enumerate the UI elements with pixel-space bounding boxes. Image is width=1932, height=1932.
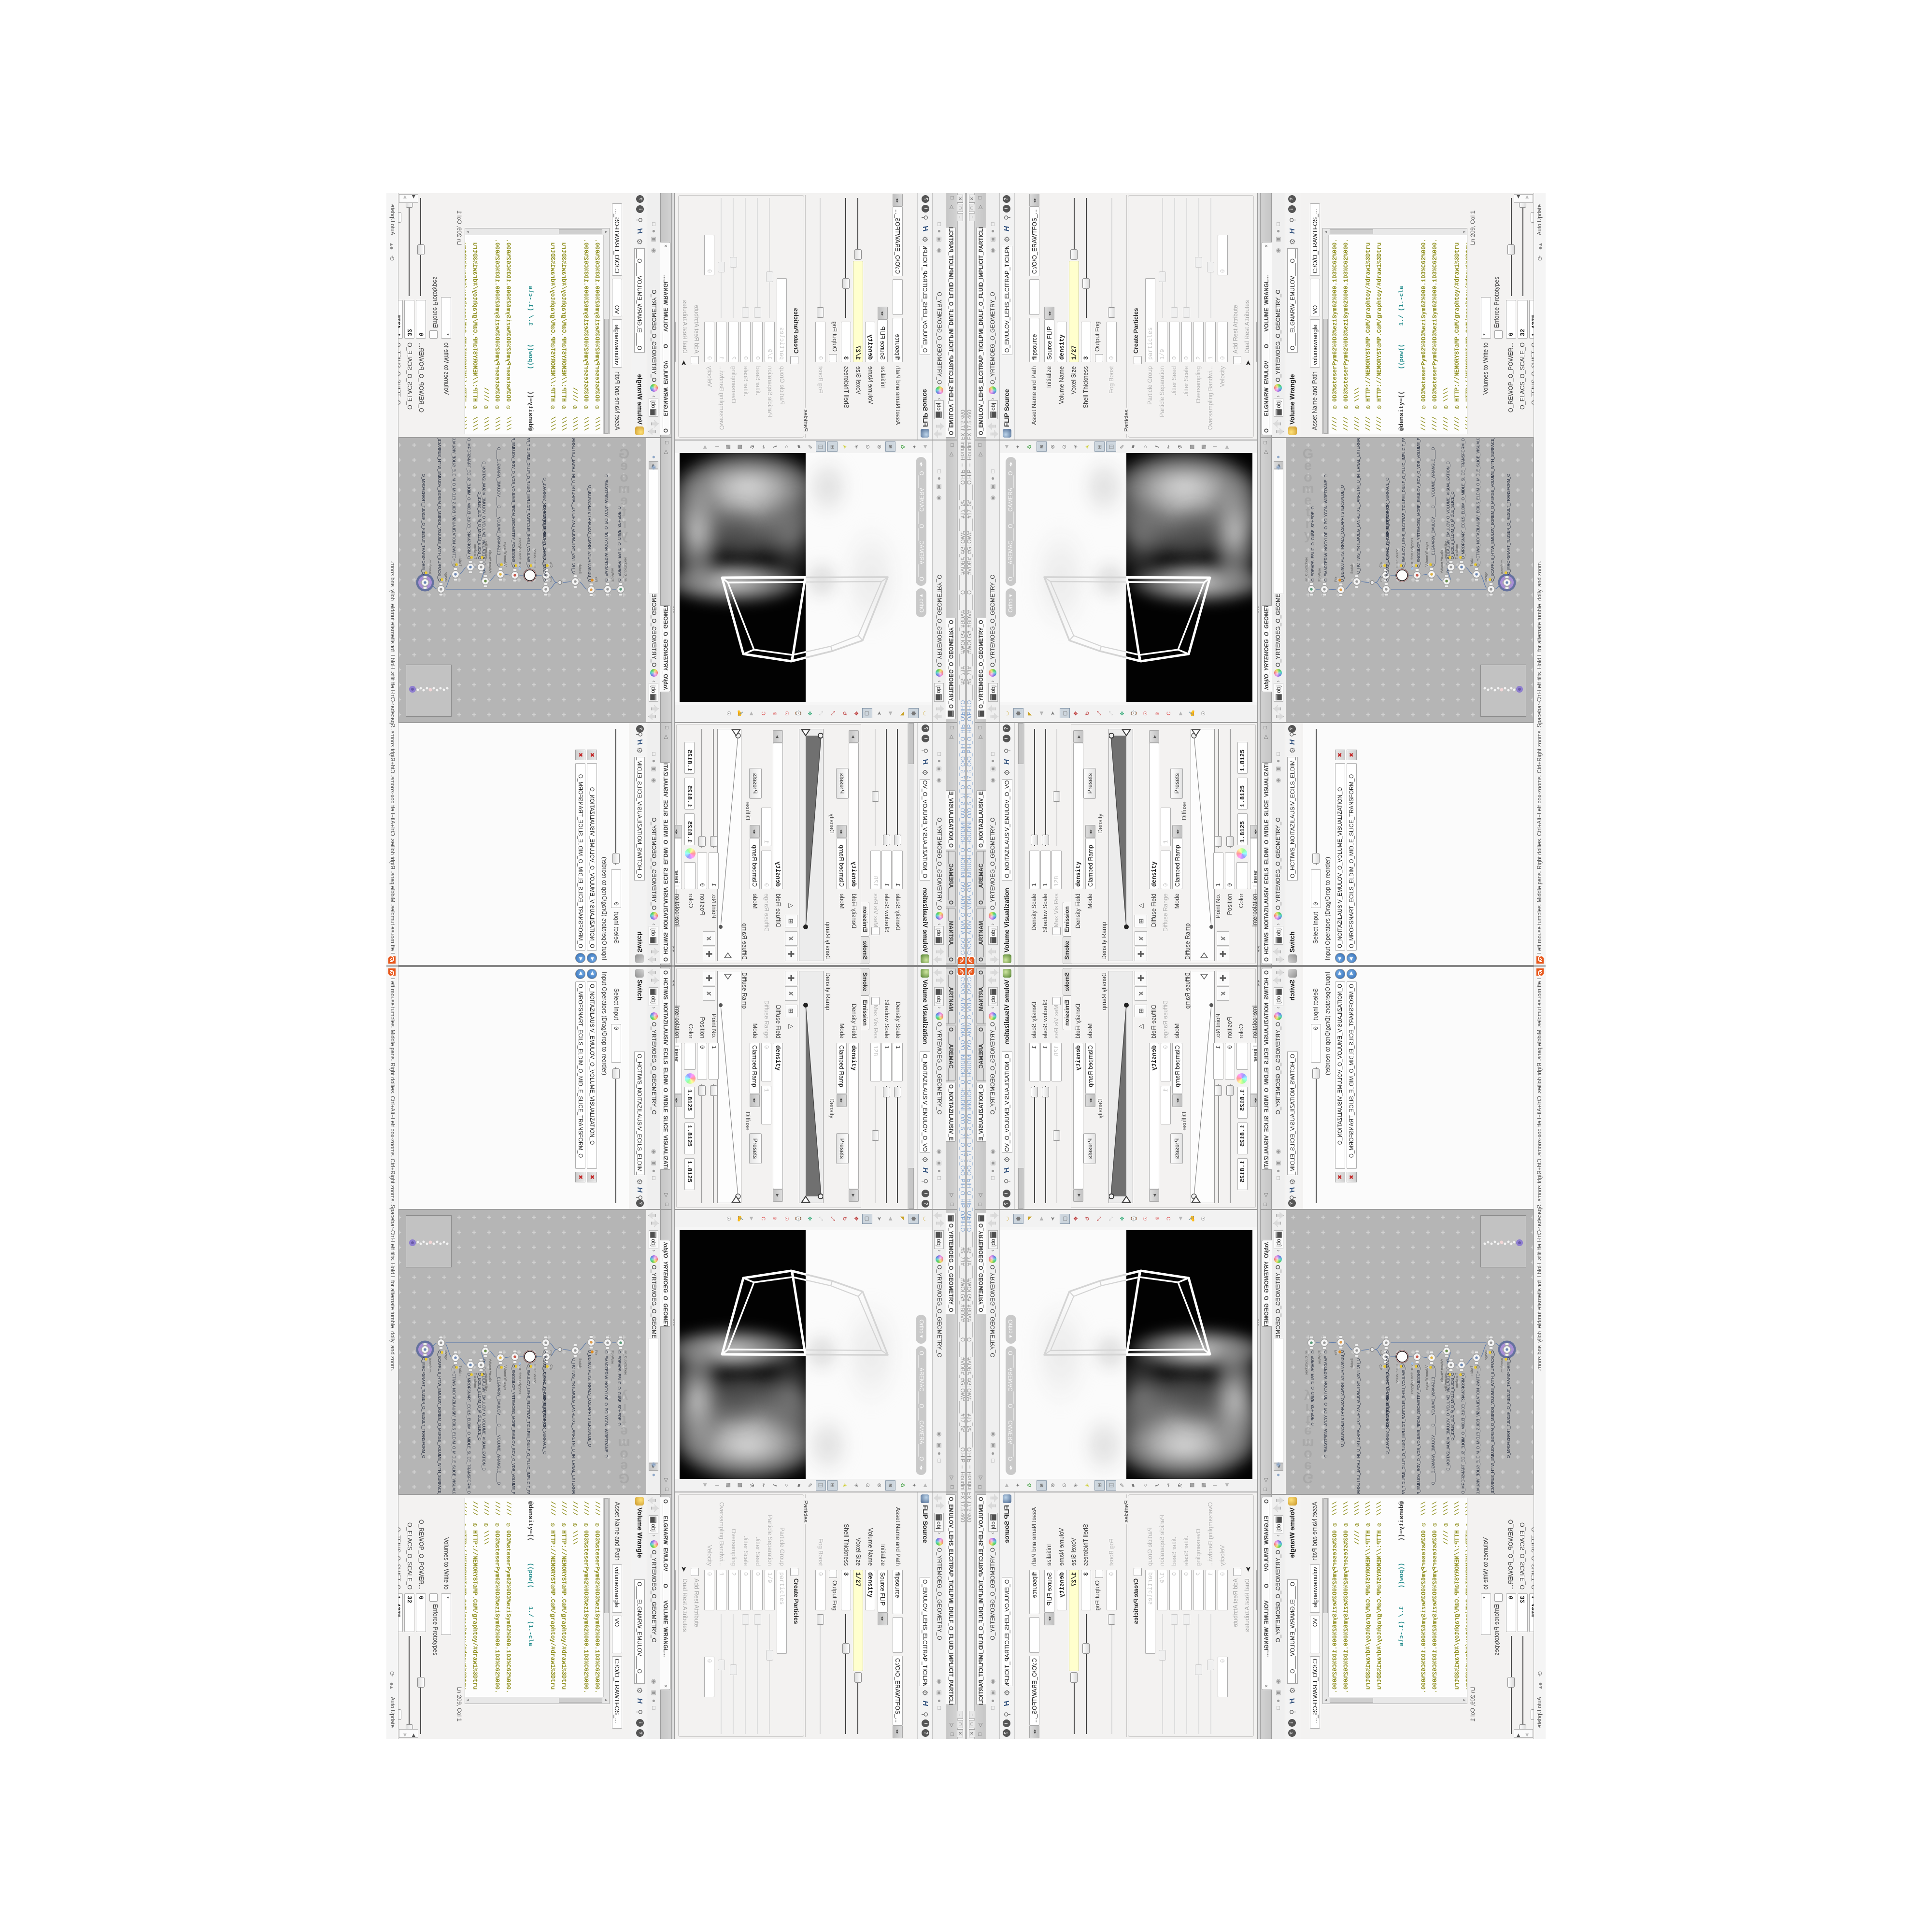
svg-text:Transform: Transform [1501,1357,1504,1373]
svg-text:Switch: Switch [1350,564,1354,574]
svg-text:O_EMARFERIW_NOGYLOP_O_POLYGON_: O_EMARFERIW_NOGYLOP_O_POLYGON_WIREFRAME_… [604,474,608,582]
svg-text:Merge: Merge [1485,572,1488,582]
svg-text:Clip: Clip [1380,1350,1383,1356]
svg-text:FLIP Source: FLIP Source [533,549,536,568]
svg-text:O_ECAFRUS_HTIW_EMULOV_EGREM_O_: O_ECAFRUS_HTIW_EMULOV_EGREM_O_MERGE_VOLU… [437,1350,441,1494]
svg-text:VolumeSlice: VolumeSlice [1445,1373,1448,1392]
svg-text:Clip: Clip [549,1350,552,1356]
svg-text:Volume Wrangle: Volume Wrangle [1425,1365,1429,1390]
svg-text:PolyWire: PolyWire [611,1350,614,1364]
svg-text:O_MROFSNART_TLUSER_O_RESULT_TR: O_MROFSNART_TLUSER_O_RESULT_TRANSFORM_O [1506,474,1511,575]
svg-text:O_MROFSNART_ECILS_ELDIM_O_MIDL: O_MROFSNART_ECILS_ELDIM_O_MIDLE_SLICE_TR… [467,438,471,559]
svg-text:O_EMARFERIW_NOGYLOP_O_POLYGON_: O_EMARFERIW_NOGYLOP_O_POLYGON_WIREFRAME_… [1324,1350,1328,1458]
svg-text:O_ECAFRUS_PILC_O_CLIP_SURFACE_: O_ECAFRUS_PILC_O_CLIP_SURFACE_O [1386,1350,1390,1426]
svg-text:O_MROFSNART_ECILS_ELDIM_O_MIDL: O_MROFSNART_ECILS_ELDIM_O_MIDLE_SLICE_TR… [1461,1373,1465,1494]
svg-text:O_EMULOV_LEHS_ELCITRAP_TICILPM: O_EMULOV_LEHS_ELCITRAP_TICILPMI_DIULF_O_… [1402,1364,1406,1494]
svg-text:O____ELGNARW_EMULOV____O____VO: O____ELGNARW_EMULOV____O____VOLUME_WRANG… [497,447,501,567]
svg-text:Merge: Merge [444,572,447,582]
svg-text:Switch: Switch [1350,1358,1354,1368]
svg-text:O_BD.N03.PETS.TRPALS_O.SLAPRT.: O_BD.N03.PETS.TRPALS_O.SLAPRT.STEP.30N.D… [1340,1350,1345,1447]
svg-text:O_SNOGILOP_YRTEMOEG_MORF_EMULO: O_SNOGILOP_YRTEMOEG_MORF_EMULOV_BDV_O_VD… [1417,1364,1421,1494]
svg-text:Volume Wrangle: Volume Wrangle [1425,542,1429,567]
svg-text:VDB from Polygons: VDB from Polygons [518,538,521,568]
svg-text:O_HCTIWS_YRTEMOEG_LANRETXE_LAN: O_HCTIWS_YRTEMOEG_LANRETXE_LANRETNI_O_IN… [1356,438,1361,574]
svg-text:O_ECAFRUS_PILC_O_CLIP_SURFACE_: O_ECAFRUS_PILC_O_CLIP_SURFACE_O [542,1350,546,1426]
svg-text:Transform: Transform [428,559,431,575]
svg-text:O_EMARFERIW_NOGYLOP_O_POLYGON_: O_EMARFERIW_NOGYLOP_O_POLYGON_WIREFRAME_… [604,1350,608,1458]
svg-text:Transform: Transform [1501,559,1504,575]
svg-text:O_MROFSNART_TLUSER_O_RESULT_TR: O_MROFSNART_TLUSER_O_RESULT_TRANSFORM_O [421,474,426,575]
svg-text:O_EMARFERIW_NOGYLOP_O_POLYGON_: O_EMARFERIW_NOGYLOP_O_POLYGON_WIREFRAME_… [1324,474,1328,582]
svg-text:an_CubeSphere: an_CubeSphere [624,557,627,582]
svg-text:O_HCTIWS_NOITAZILAUSIV_ECILS_E: O_HCTIWS_NOITAZILAUSIV_ECILS_ELDIM_O_MID… [452,438,456,567]
svg-text:O_ECAFRUS_PILC_O_CLIP_SURFACE_: O_ECAFRUS_PILC_O_CLIP_SURFACE_O [1386,506,1390,582]
svg-text:Clip: Clip [1379,562,1383,568]
svg-text:O_HCTIWS_YRTEMOEG_LANRETXE_LAN: O_HCTIWS_YRTEMOEG_LANRETXE_LANRETNI_O_IN… [571,1358,576,1494]
svg-text:O_HCTIWS_NOITAZILAUSIV_ECILS_E: O_HCTIWS_NOITAZILAUSIV_ECILS_ELDIM_O_MID… [1476,1365,1480,1494]
svg-text:Clip: Clip [549,576,552,582]
svg-text:an_CubeSphere: an_CubeSphere [1305,557,1308,582]
svg-text:PolyWire: PolyWire [1318,568,1321,582]
svg-text:Transform: Transform [1455,1373,1459,1388]
svg-text:O_SNOGILOP_YRTEMOEG_MORF_EMULO: O_SNOGILOP_YRTEMOEG_MORF_EMULOV_BDV_O_VD… [1417,438,1421,568]
svg-text:Clip: Clip [1380,576,1383,582]
svg-text:an_CubeSphere: an_CubeSphere [624,1350,627,1375]
svg-text:File: File [1335,577,1338,582]
svg-text:Volume Wrangle: Volume Wrangle [503,1365,507,1390]
svg-text:VDB from Polygons: VDB from Polygons [1411,1364,1414,1394]
svg-text:O_MROFSNART_ECILS_ELDIM_O_MIDL: O_MROFSNART_ECILS_ELDIM_O_MIDLE_SLICE_TR… [1461,438,1465,559]
svg-text:Switch: Switch [578,564,582,574]
svg-text:O_BD.N03.PETS.TRPALS_O.SLAPRT.: O_BD.N03.PETS.TRPALS_O.SLAPRT.STEP.30N.D… [587,1350,592,1447]
svg-text:Merge: Merge [1485,1350,1488,1360]
svg-text:Volume Visualiz: Volume Visualiz [488,549,492,573]
svg-text:Transform: Transform [428,1357,431,1373]
svg-text:Volume Visualiz: Volume Visualiz [1440,1359,1444,1383]
svg-text:FLIP Source: FLIP Source [1396,549,1399,568]
svg-text:VolumeSlice: VolumeSlice [484,540,487,559]
svg-text:O_HCTIWS_YRTEMOEG_LANRETXE_LAN: O_HCTIWS_YRTEMOEG_LANRETXE_LANRETNI_O_IN… [1356,1358,1361,1494]
svg-text:Volume Visualiz: Volume Visualiz [1440,549,1444,573]
svg-text:Switch: Switch [458,1365,462,1376]
svg-text:O_ECILS_ELDIM_O_MIDLE_SLICE_O: O_ECILS_ELDIM_O_MIDLE_SLICE_O [477,491,482,559]
svg-text:Clip: Clip [1379,1364,1383,1370]
svg-text:O_HCTIWS_YRTEMOEG_LANRETXE_LAN: O_HCTIWS_YRTEMOEG_LANRETXE_LANRETNI_O_IN… [571,438,576,574]
svg-text:O_BD.N03.PETS.TRPALS_O.SLAPRT.: O_BD.N03.PETS.TRPALS_O.SLAPRT.STEP.30N.D… [1340,485,1345,582]
svg-text:Clip: Clip [549,562,553,568]
svg-text:File: File [1335,1350,1338,1355]
svg-text:O____ELGNARW_EMULOV____O____VO: O____ELGNARW_EMULOV____O____VOLUME_WRANG… [1431,1365,1435,1485]
svg-text:VolumeSlice: VolumeSlice [484,1373,487,1392]
svg-text:Transform: Transform [473,1373,477,1388]
svg-text:O_EMULOV_LEHS_ELCITRAP_TICILPM: O_EMULOV_LEHS_ELCITRAP_TICILPMI_DIULF_O_… [526,1364,530,1494]
svg-text:File: File [594,577,597,582]
svg-text:Switch: Switch [458,556,462,567]
svg-text:Switch: Switch [1470,1365,1474,1376]
svg-text:O_HCTIWS_NOITAZILAUSIV_ECILS_E: O_HCTIWS_NOITAZILAUSIV_ECILS_ELDIM_O_MID… [452,1365,456,1494]
svg-text:Switch: Switch [1470,556,1474,567]
svg-text:O_ECAFRUS_PILC_O_CLIP_SURFACE_: O_ECAFRUS_PILC_O_CLIP_SURFACE_O [542,506,546,582]
svg-text:O_ECILS_ELDIM_O_MIDLE_SLICE_O: O_ECILS_ELDIM_O_MIDLE_SLICE_O [1450,1373,1455,1441]
svg-text:Volume Visualiz: Volume Visualiz [488,1359,492,1383]
svg-text:O_HCTIWS_NOITAZILAUSIV_ECILS_E: O_HCTIWS_NOITAZILAUSIV_ECILS_ELDIM_O_MID… [1476,438,1480,567]
svg-text:PolyWire: PolyWire [611,568,614,582]
svg-text:O_MROFSNART_ECILS_ELDIM_O_MIDL: O_MROFSNART_ECILS_ELDIM_O_MIDLE_SLICE_TR… [467,1373,471,1494]
svg-text:O_ECAFRUS_HTIW_EMULOV_EGREM_O_: O_ECAFRUS_HTIW_EMULOV_EGREM_O_MERGE_VOLU… [1491,1350,1495,1494]
svg-text:O____ELGNARW_EMULOV____O____VO: O____ELGNARW_EMULOV____O____VOLUME_WRANG… [1431,447,1435,567]
svg-text:O_SNOGILOP_YRTEMOEG_MORF_EMULO: O_SNOGILOP_YRTEMOEG_MORF_EMULOV_BDV_O_VD… [511,1364,515,1494]
svg-text:an_CubeSphere: an_CubeSphere [1305,1350,1308,1375]
svg-text:PolyWire: PolyWire [1318,1350,1321,1364]
svg-text:FLIP Source: FLIP Source [1396,1364,1399,1383]
svg-text:O_EMULOV_LEHS_ELCITRAP_TICILPM: O_EMULOV_LEHS_ELCITRAP_TICILPMI_DIULF_O_… [1402,438,1406,568]
svg-text:O____ELGNARW_EMULOV____O____VO: O____ELGNARW_EMULOV____O____VOLUME_WRANG… [497,1365,501,1485]
svg-text:O_ECILS_ELDIM_O_MIDLE_SLICE_O: O_ECILS_ELDIM_O_MIDLE_SLICE_O [477,1373,482,1441]
svg-text:FLIP Source: FLIP Source [533,1364,536,1383]
svg-text:VolumeSlice: VolumeSlice [1445,540,1448,559]
svg-text:O_SNOGILOP_YRTEMOEG_MORF_EMULO: O_SNOGILOP_YRTEMOEG_MORF_EMULOV_BDV_O_VD… [511,438,515,568]
svg-text:O_ECILS_ELDIM_O_MIDLE_SLICE_O: O_ECILS_ELDIM_O_MIDLE_SLICE_O [1450,491,1455,559]
svg-text:Clip: Clip [549,1364,553,1370]
svg-text:Volume Wrangle: Volume Wrangle [503,542,507,567]
svg-text:O_ECAFRUS_HTIW_EMULOV_EGREM_O_: O_ECAFRUS_HTIW_EMULOV_EGREM_O_MERGE_VOLU… [1491,438,1495,582]
svg-text:VDB from Polygons: VDB from Polygons [518,1364,521,1394]
svg-text:Switch: Switch [578,1358,582,1368]
svg-text:Transform: Transform [473,544,477,559]
svg-text:O_BD.N03.PETS.TRPALS_O.SLAPRT.: O_BD.N03.PETS.TRPALS_O.SLAPRT.STEP.30N.D… [587,485,592,582]
svg-text:O_MROFSNART_TLUSER_O_RESULT_TR: O_MROFSNART_TLUSER_O_RESULT_TRANSFORM_O [421,1357,426,1458]
svg-text:VDB from Polygons: VDB from Polygons [1411,538,1414,568]
svg-text:File: File [594,1350,597,1355]
svg-text:Transform: Transform [1455,544,1459,559]
svg-text:O_EMULOV_LEHS_ELCITRAP_TICILPM: O_EMULOV_LEHS_ELCITRAP_TICILPMI_DIULF_O_… [526,438,530,568]
svg-text:O_ECAFRUS_HTIW_EMULOV_EGREM_O_: O_ECAFRUS_HTIW_EMULOV_EGREM_O_MERGE_VOLU… [437,438,441,582]
svg-text:Merge: Merge [444,1350,447,1360]
svg-text:O_MROFSNART_TLUSER_O_RESULT_TR: O_MROFSNART_TLUSER_O_RESULT_TRANSFORM_O [1506,1357,1511,1458]
